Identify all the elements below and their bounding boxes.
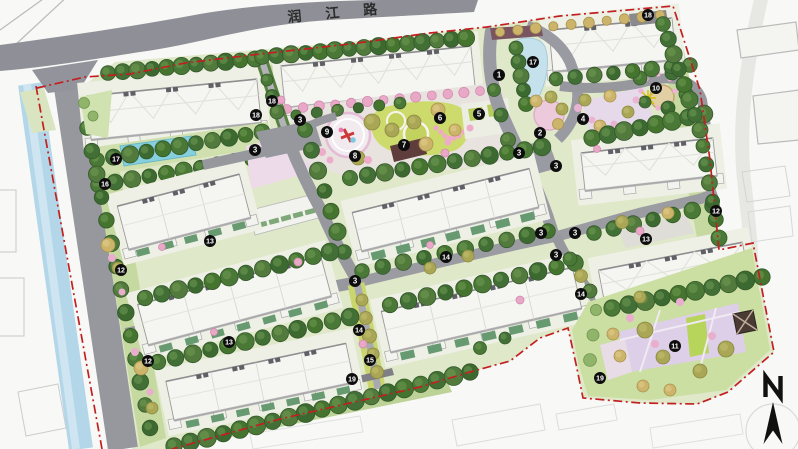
svg-text:18: 18 [268, 99, 276, 106]
svg-text:13: 13 [206, 239, 214, 246]
svg-text:13: 13 [642, 237, 650, 244]
svg-text:17: 17 [112, 157, 120, 164]
svg-text:4: 4 [581, 115, 586, 124]
svg-text:3: 3 [573, 229, 578, 238]
svg-text:18: 18 [252, 113, 260, 120]
svg-text:17: 17 [529, 60, 537, 67]
svg-text:3: 3 [353, 277, 358, 286]
svg-text:8: 8 [353, 152, 358, 161]
svg-text:3: 3 [554, 251, 559, 260]
svg-text:19: 19 [348, 377, 356, 384]
svg-text:11: 11 [671, 344, 679, 351]
svg-text:14: 14 [577, 292, 585, 299]
svg-text:18: 18 [644, 13, 652, 20]
svg-text:3: 3 [517, 149, 522, 158]
svg-text:15: 15 [366, 358, 374, 365]
svg-text:7: 7 [402, 141, 406, 150]
svg-text:3: 3 [253, 146, 258, 155]
svg-text:6: 6 [438, 114, 443, 123]
svg-text:3: 3 [539, 229, 544, 238]
svg-text:1: 1 [497, 71, 502, 80]
svg-text:12: 12 [712, 209, 720, 216]
svg-text:3: 3 [554, 162, 559, 171]
svg-text:12: 12 [117, 268, 125, 275]
svg-text:10: 10 [652, 86, 660, 93]
svg-text:3: 3 [298, 116, 303, 125]
svg-text:2: 2 [538, 129, 543, 138]
svg-text:13: 13 [225, 340, 233, 347]
svg-text:12: 12 [144, 359, 152, 366]
svg-text:5: 5 [477, 110, 482, 119]
svg-text:16: 16 [101, 182, 109, 189]
svg-text:14: 14 [355, 328, 363, 335]
svg-text:9: 9 [325, 128, 330, 137]
svg-text:19: 19 [596, 376, 604, 383]
svg-text:14: 14 [442, 255, 450, 262]
